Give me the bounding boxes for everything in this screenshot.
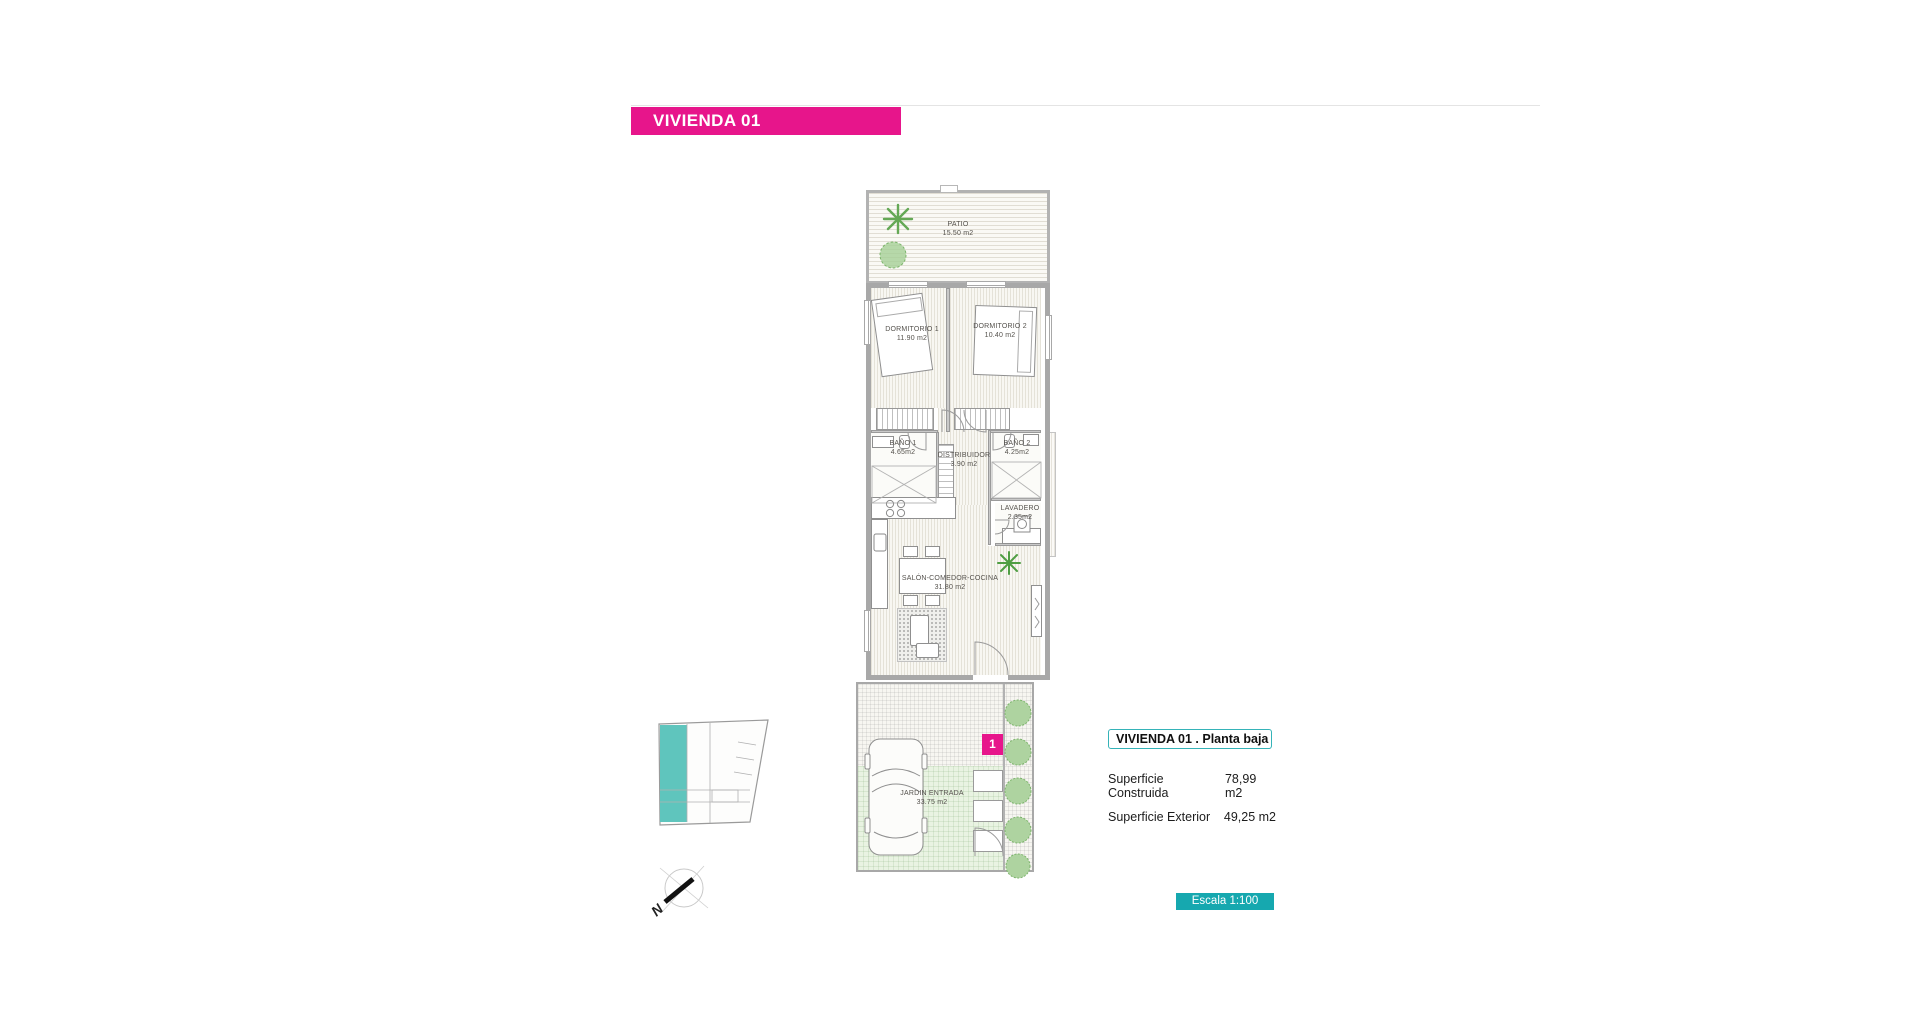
wall-between-dorms [946,288,950,432]
chair [925,546,940,557]
wardrobe-dormitorio1 [876,408,934,430]
room-label-dormitorio2: DORMITORIO 210.40 m2 [973,322,1027,340]
info-panel-title: VIVIENDA 01 . Planta baja [1109,730,1271,748]
info-value: 49,25 m2 [1224,810,1276,824]
salon-side-window [864,610,871,652]
wall-bano2-top [988,430,1041,433]
room-label-bano2: BAÑO 24.25m2 [1004,439,1031,457]
garden-step [973,800,1003,822]
info-label: Superficie Exterior [1108,810,1210,824]
room-label-patio: PATIO15.50 m2 [943,220,974,238]
scale-badge: Escala 1:100 [1176,893,1274,910]
salon-tall-unit [1031,585,1042,637]
sofa-seat [910,615,929,646]
garden-step [973,770,1003,792]
room-label-lavadero: LAVADERO2.35m2 [1001,504,1040,522]
dormitorio2-side-window [1045,315,1052,360]
info-label: Superficie Construida [1108,772,1225,800]
info-panel-header-box: VIVIENDA 01 . Planta baja [1108,729,1272,749]
room-label-distribuidor: DISTRIBUIDOR3.90 m2 [938,451,991,469]
wall-bano1-top [871,430,938,433]
wall-bano2-left [988,430,991,545]
side-path [1004,766,1032,870]
entrance-door-opening [973,675,1008,680]
pillow-dormitorio1 [875,297,923,317]
garden-fence-line [1003,684,1005,870]
pillow-dormitorio2 [1017,310,1033,372]
patio-vent [940,185,958,193]
unit-number-marker: 1 [982,734,1003,755]
bed-dormitorio2 [973,305,1037,377]
chair [903,546,918,557]
kitchen-counter-side [871,519,888,609]
highlighted-unit [660,725,687,822]
compass-needle [665,879,693,902]
info-row-construida: Superficie Construida 78,99 m2 [1108,772,1276,800]
sheet-title: VIVIENDA 01 [631,107,901,135]
chair [903,595,918,606]
dormitorio1-side-window [864,300,871,345]
chair [925,595,940,606]
dormitorio1-window [888,281,928,288]
north-compass: N [648,858,728,933]
lavadero-counter [1002,528,1041,544]
garden-step [973,830,1003,852]
wardrobe-dormitorio2 [954,408,1010,430]
layout-guide-line [631,105,1540,106]
room-label-bano1: BAÑO 14.65m2 [890,439,917,457]
sofa-chaise [916,643,939,658]
room-label-dormitorio1: DORMITORIO 111.90 m2 [885,325,939,343]
terrace-paving [858,684,1032,766]
info-value: 78,99 m2 [1225,772,1276,800]
sheet-title-bar: VIVIENDA 01 [631,107,901,135]
room-label-salon: SALÓN-COMEDOR-COCINA31.80 m2 [902,574,998,592]
info-row-exterior: Superficie Exterior 49,25 m2 [1108,810,1276,824]
info-panel-rows: Superficie Construida 78,99 m2 Superfici… [1108,772,1276,834]
kitchen-counter-top [871,497,956,519]
dormitorio2-window [966,281,1006,288]
room-label-jardin: JARDIN ENTRADA33.75 m2 [900,789,963,807]
wall-bano2-bottom [991,498,1041,501]
site-locator-plan [648,712,778,837]
plan-sheet: VIVIENDA 01 [0,0,1920,1024]
